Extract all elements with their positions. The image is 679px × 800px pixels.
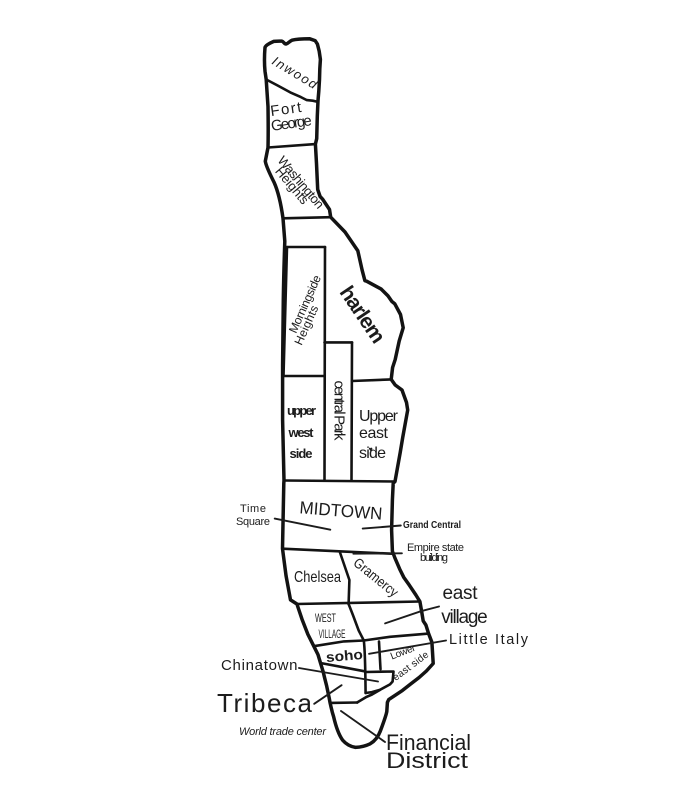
svg-text:east: east [443,583,479,604]
svg-text:District: District [386,748,468,773]
svg-text:Square: Square [236,516,270,528]
svg-text:World trade center: World trade center [239,726,327,738]
svg-text:building: building [420,552,448,564]
svg-text:VILLAGE: VILLAGE [319,627,346,641]
svg-text:Tribeca: Tribeca [217,688,313,718]
svg-text:central Park: central Park [331,381,348,442]
svg-text:side: side [290,446,313,461]
svg-text:upper: upper [287,403,316,418]
svg-text:soho: soho [325,646,363,665]
svg-text:Grand Central: Grand Central [403,520,461,531]
svg-text:Upper: Upper [359,408,399,425]
svg-text:east: east [359,425,389,442]
svg-text:Little Italy: Little Italy [449,632,529,648]
svg-text:Chelsea: Chelsea [294,569,341,586]
svg-text:Time: Time [240,503,266,515]
svg-text:west: west [288,425,315,440]
svg-text:Chinatown: Chinatown [221,657,298,674]
svg-text:WEST: WEST [315,611,336,625]
svg-text:♥: ♥ [369,447,373,454]
svg-text:village: village [441,607,488,628]
